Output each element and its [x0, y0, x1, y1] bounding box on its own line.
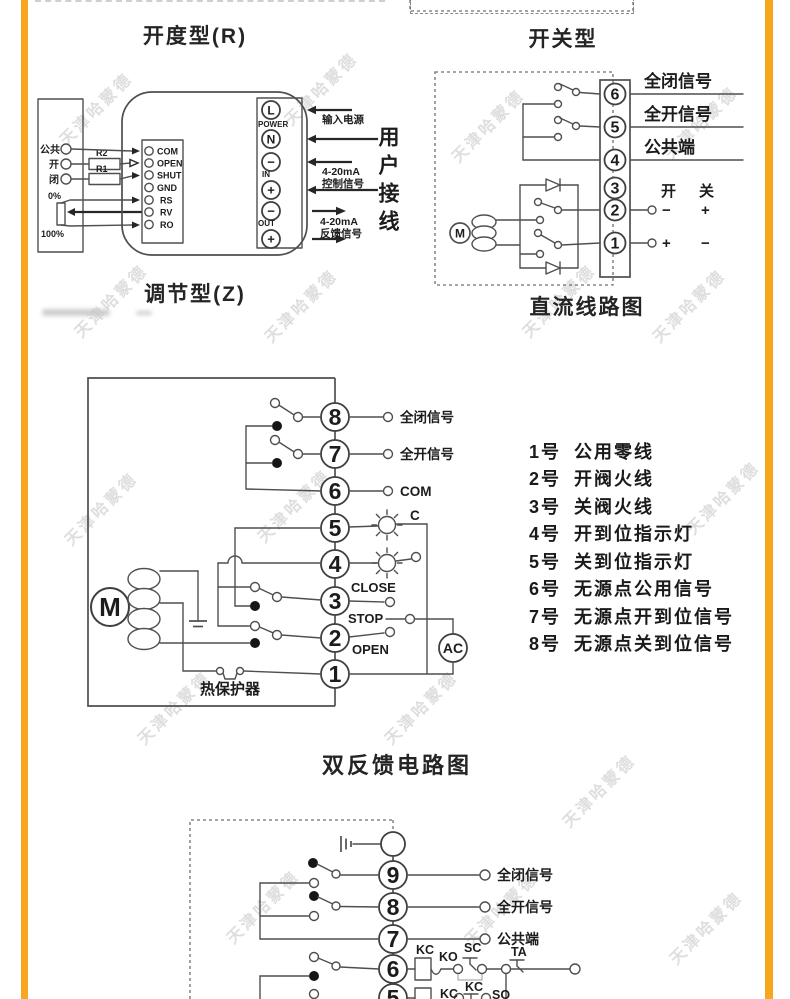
sc-contact-label: SC [464, 941, 481, 955]
manual-page: 天津哈蒙德 天津哈蒙德 天津哈蒙德 天津哈蒙德 天津哈蒙德 天津哈蒙德 天津哈蒙… [0, 0, 790, 999]
legend-row: 7号无源点开到位信号 [529, 602, 734, 630]
cropped-box-edge [410, 0, 633, 11]
ctrl-signal-label-2: 控制信号 [322, 177, 364, 190]
pot-100-label: 100% [41, 229, 64, 239]
ground-symbol-icon [341, 836, 381, 852]
signal-rows: 全闭信号 全开信号 公共端 [407, 867, 553, 947]
dc-circuit-caption: 直流线路图 [487, 291, 687, 321]
kc3-label: KC [465, 980, 483, 994]
open-label: 开 [49, 159, 59, 171]
so-contact-label: SO [492, 988, 510, 999]
fb-signal-label-1: 4-20mA [320, 216, 358, 228]
reversing-contacts [520, 179, 600, 274]
lamp-c-label: C [410, 508, 420, 523]
svg-text:+: + [662, 235, 671, 252]
svg-text:GND: GND [157, 183, 178, 193]
limit-switches [260, 858, 379, 999]
terminal-column: 8 7 6 5 4 3 2 1 [321, 378, 349, 706]
close-col-label: 关 [699, 182, 714, 200]
regulating-subtitle: 调节型(Z) [95, 278, 295, 308]
open-col-label: 开 [661, 183, 676, 200]
svg-text:L: L [267, 104, 274, 118]
svg-text:4: 4 [611, 153, 620, 170]
motor: M [91, 569, 160, 650]
stop-button-label: STOP [348, 611, 383, 626]
full-open-signal-label: 全开信号 [399, 446, 454, 462]
power-group-label: POWER [258, 120, 288, 129]
svg-text:5: 5 [611, 120, 620, 137]
out-group-label: OUT [258, 219, 275, 228]
svg-text:RV: RV [160, 208, 172, 218]
dc-circuit-diagram: M [400, 0, 762, 330]
svg-text:4: 4 [329, 551, 342, 577]
svg-text:−: − [267, 155, 275, 170]
close-lamp-icon [372, 510, 402, 540]
thermal-protector-label: 热保护器 [200, 680, 261, 698]
terminal-column: 9 8 7 6 5 [379, 856, 407, 999]
svg-text:+: + [267, 232, 275, 247]
motor: M [450, 215, 520, 251]
in-group-label: IN [262, 170, 270, 179]
power-in-label: 输入电源 [322, 113, 364, 126]
limit-switches [523, 84, 600, 161]
svg-text:−: − [662, 202, 671, 219]
svg-text:7: 7 [387, 926, 400, 952]
left-accent-bar [21, 0, 28, 999]
double-feedback-title: 双反馈电路图 [277, 748, 517, 780]
com-label: COM [400, 484, 432, 499]
svg-text:9: 9 [387, 862, 400, 888]
watermark: 天津哈蒙德 [663, 885, 747, 969]
output-signals: 全闭信号 全开信号 COM C [348, 409, 467, 674]
svg-text:RO: RO [160, 220, 174, 230]
close-label: 闭 [49, 173, 59, 186]
direction-switches [160, 528, 321, 648]
svg-text:8: 8 [329, 404, 342, 430]
resistors: R2 R1 [89, 148, 120, 185]
user-wiring-arrows: 输入电源 4-20mA 控制信号 4-20mA 反馈信号 [307, 106, 378, 243]
open-button-label: OPEN [352, 642, 389, 657]
relay-contact-row-2: KC KC SO [407, 980, 510, 999]
legend-row: 4号开到位指示灯 [529, 520, 734, 548]
svg-text:6: 6 [329, 478, 342, 504]
kc-relay-label: KC [416, 943, 434, 957]
right-accent-bar [765, 0, 773, 999]
svg-text:5: 5 [387, 985, 400, 999]
resistor-r1-label: R1 [96, 164, 108, 174]
ctrl-signal-label-1: 4-20mA [322, 166, 360, 178]
ko-contact-label: KO [439, 950, 458, 964]
svg-text:3: 3 [329, 588, 342, 614]
svg-text:M: M [455, 227, 465, 241]
common-terminal-label: 公共端 [644, 137, 695, 157]
user-wiring-side-label: 用户接线 [372, 126, 402, 246]
ta-contact-label: TA [511, 945, 527, 959]
svg-text:−: − [267, 204, 275, 219]
motor-node [381, 832, 405, 856]
svg-text:8: 8 [387, 894, 400, 920]
power-terminal-strip: L POWER N − IN + − OUT + [257, 98, 302, 248]
svg-text:6: 6 [611, 87, 620, 104]
svg-text:OPEN: OPEN [157, 159, 183, 169]
full-open-signal-label: 全开信号 [496, 899, 553, 915]
terminal-strip: 6 5 4 3 2 1 [600, 80, 630, 277]
svg-text:+: + [701, 202, 710, 219]
bottom-feedback-diagram: 9 8 7 6 5 全闭信号 全 [150, 790, 650, 999]
svg-text:2: 2 [329, 625, 342, 651]
full-open-label: 全开信号 [643, 104, 712, 124]
kc2-label: KC [440, 987, 458, 999]
legend-row: 6号无源点公用信号 [529, 575, 734, 603]
ac-source-label: AC [443, 640, 463, 656]
input-wiring [61, 148, 142, 229]
legend-row: 5号关到位指示灯 [529, 547, 734, 575]
signal-labels: 全闭信号 全开信号 公共端 开 关 − + + − [630, 71, 743, 252]
svg-text:1: 1 [611, 236, 620, 253]
svg-text:N: N [267, 133, 276, 147]
svg-text:−: − [701, 235, 710, 252]
upper-limit-switches [246, 399, 321, 492]
full-close-label: 全闭信号 [643, 71, 712, 91]
full-close-signal-label: 全闭信号 [399, 409, 454, 425]
svg-text:7: 7 [329, 441, 342, 467]
svg-text:M: M [99, 592, 121, 622]
svg-text:SHUT: SHUT [157, 171, 182, 181]
terminal-legend: 1号公用零线 2号开阀火线 3号关阀火线 4号开到位指示灯 5号关到位指示灯 6… [529, 437, 734, 657]
svg-text:3: 3 [611, 181, 620, 198]
svg-text:RS: RS [160, 196, 173, 206]
control-module: COM OPEN SHUT GND RS RV RO L POWER N − I… [122, 92, 307, 255]
svg-text:5: 5 [329, 515, 342, 541]
svg-text:6: 6 [387, 956, 400, 982]
legend-row: 2号开阀火线 [529, 465, 734, 493]
svg-text:1: 1 [329, 661, 342, 687]
common-label: 公共 [40, 143, 60, 156]
svg-text:2: 2 [611, 203, 620, 220]
legend-row: 1号公用零线 [529, 437, 734, 465]
module-terminals: COM OPEN SHUT GND RS RV RO [145, 147, 183, 231]
svg-text:+: + [267, 183, 275, 198]
input-terminal-box: 公共 开 闭 0% 100% [38, 99, 83, 252]
diode-icon [546, 262, 560, 274]
double-feedback-diagram: 8 7 6 5 4 3 2 1 M [60, 360, 540, 780]
fb-signal-label-2: 反馈信号 [320, 227, 362, 240]
pot-0-label: 0% [48, 191, 61, 201]
full-close-signal-label: 全闭信号 [496, 867, 553, 883]
legend-row: 8号无源点关到位信号 [529, 630, 734, 658]
legend-row: 3号关阀火线 [529, 492, 734, 520]
thermal-protector: 热保护器 [160, 603, 321, 698]
enclosure-dashed-box [190, 820, 393, 999]
enclosure-frame [88, 378, 335, 706]
open-lamp-icon [372, 548, 402, 578]
close-button-label: CLOSE [351, 580, 396, 595]
diode-icon [546, 179, 560, 191]
svg-text:COM: COM [157, 147, 178, 157]
